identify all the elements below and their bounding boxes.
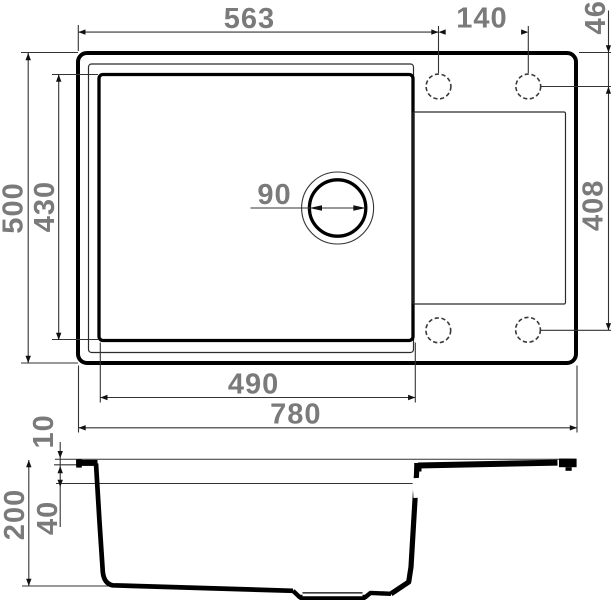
svg-text:490: 490 (228, 368, 279, 400)
svg-text:140: 140 (456, 3, 507, 35)
svg-text:90: 90 (257, 179, 291, 211)
svg-text:200: 200 (0, 489, 31, 540)
svg-text:46: 46 (580, 0, 611, 34)
svg-text:430: 430 (29, 181, 61, 232)
svg-text:408: 408 (578, 180, 610, 231)
svg-text:40: 40 (32, 501, 64, 535)
svg-text:563: 563 (224, 3, 275, 35)
svg-text:780: 780 (270, 399, 321, 431)
svg-text:10: 10 (28, 414, 60, 448)
svg-text:500: 500 (0, 182, 30, 233)
